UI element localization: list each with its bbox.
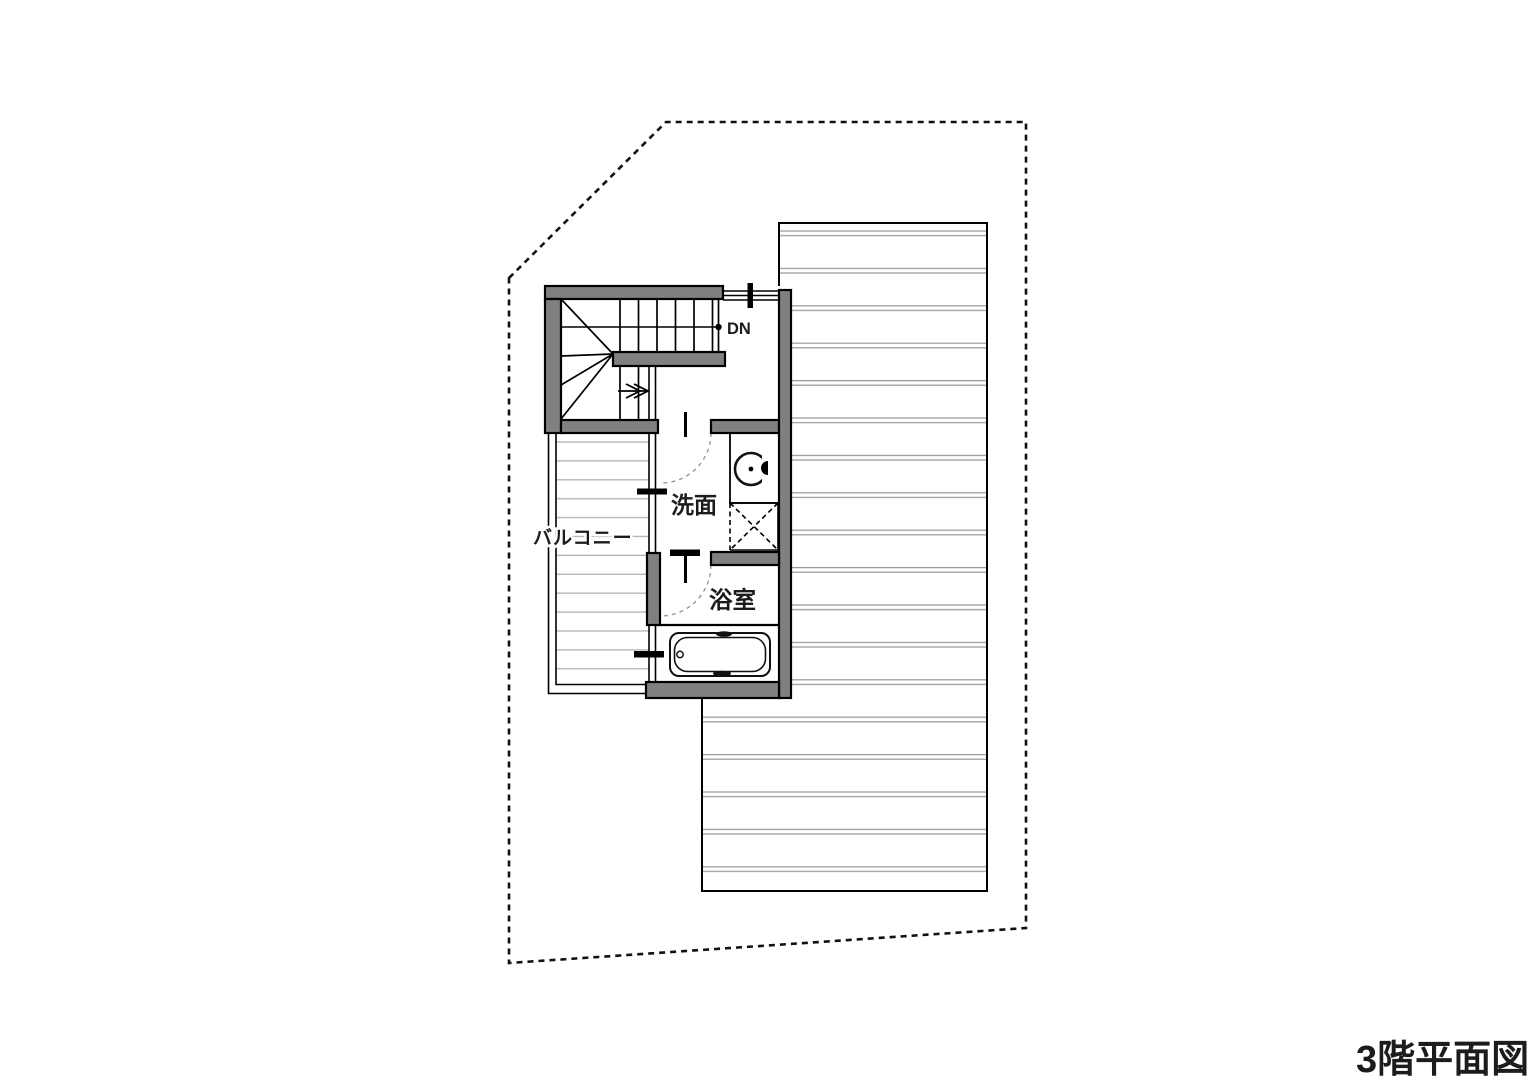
window-tick <box>634 651 664 658</box>
wall-bathroom-left <box>647 553 660 625</box>
bathroom-fixtures <box>657 625 779 676</box>
floor-plan-page: DN 洗面 浴室 バルコニー 3階平面図 <box>0 0 1536 1086</box>
wall-stair-bottom <box>561 420 658 433</box>
balcony-deck <box>556 434 649 682</box>
wall-bottom <box>646 682 779 698</box>
wall-right <box>779 290 791 698</box>
window-tick <box>637 489 667 495</box>
wall-top <box>545 286 723 299</box>
dn-label: DN <box>727 320 751 338</box>
stair-dn-dot <box>715 324 721 330</box>
wall-washroom-top <box>711 420 779 433</box>
washroom-label: 洗面 <box>671 492 717 518</box>
wall-left <box>545 299 561 433</box>
floor-plan-title: 3階平面図 <box>1356 1039 1529 1081</box>
stair-mid-wall <box>613 352 725 366</box>
bathtub-icon <box>670 631 770 676</box>
floor-plan-canvas: DN 洗面 浴室 バルコニー 3階平面図 <box>0 0 1536 1086</box>
balcony-label: バルコニー <box>533 527 633 549</box>
bathroom-label: 浴室 <box>709 586 756 613</box>
wall-bathroom-top <box>711 552 779 565</box>
window-tick <box>748 283 754 308</box>
door-tick <box>670 550 700 557</box>
